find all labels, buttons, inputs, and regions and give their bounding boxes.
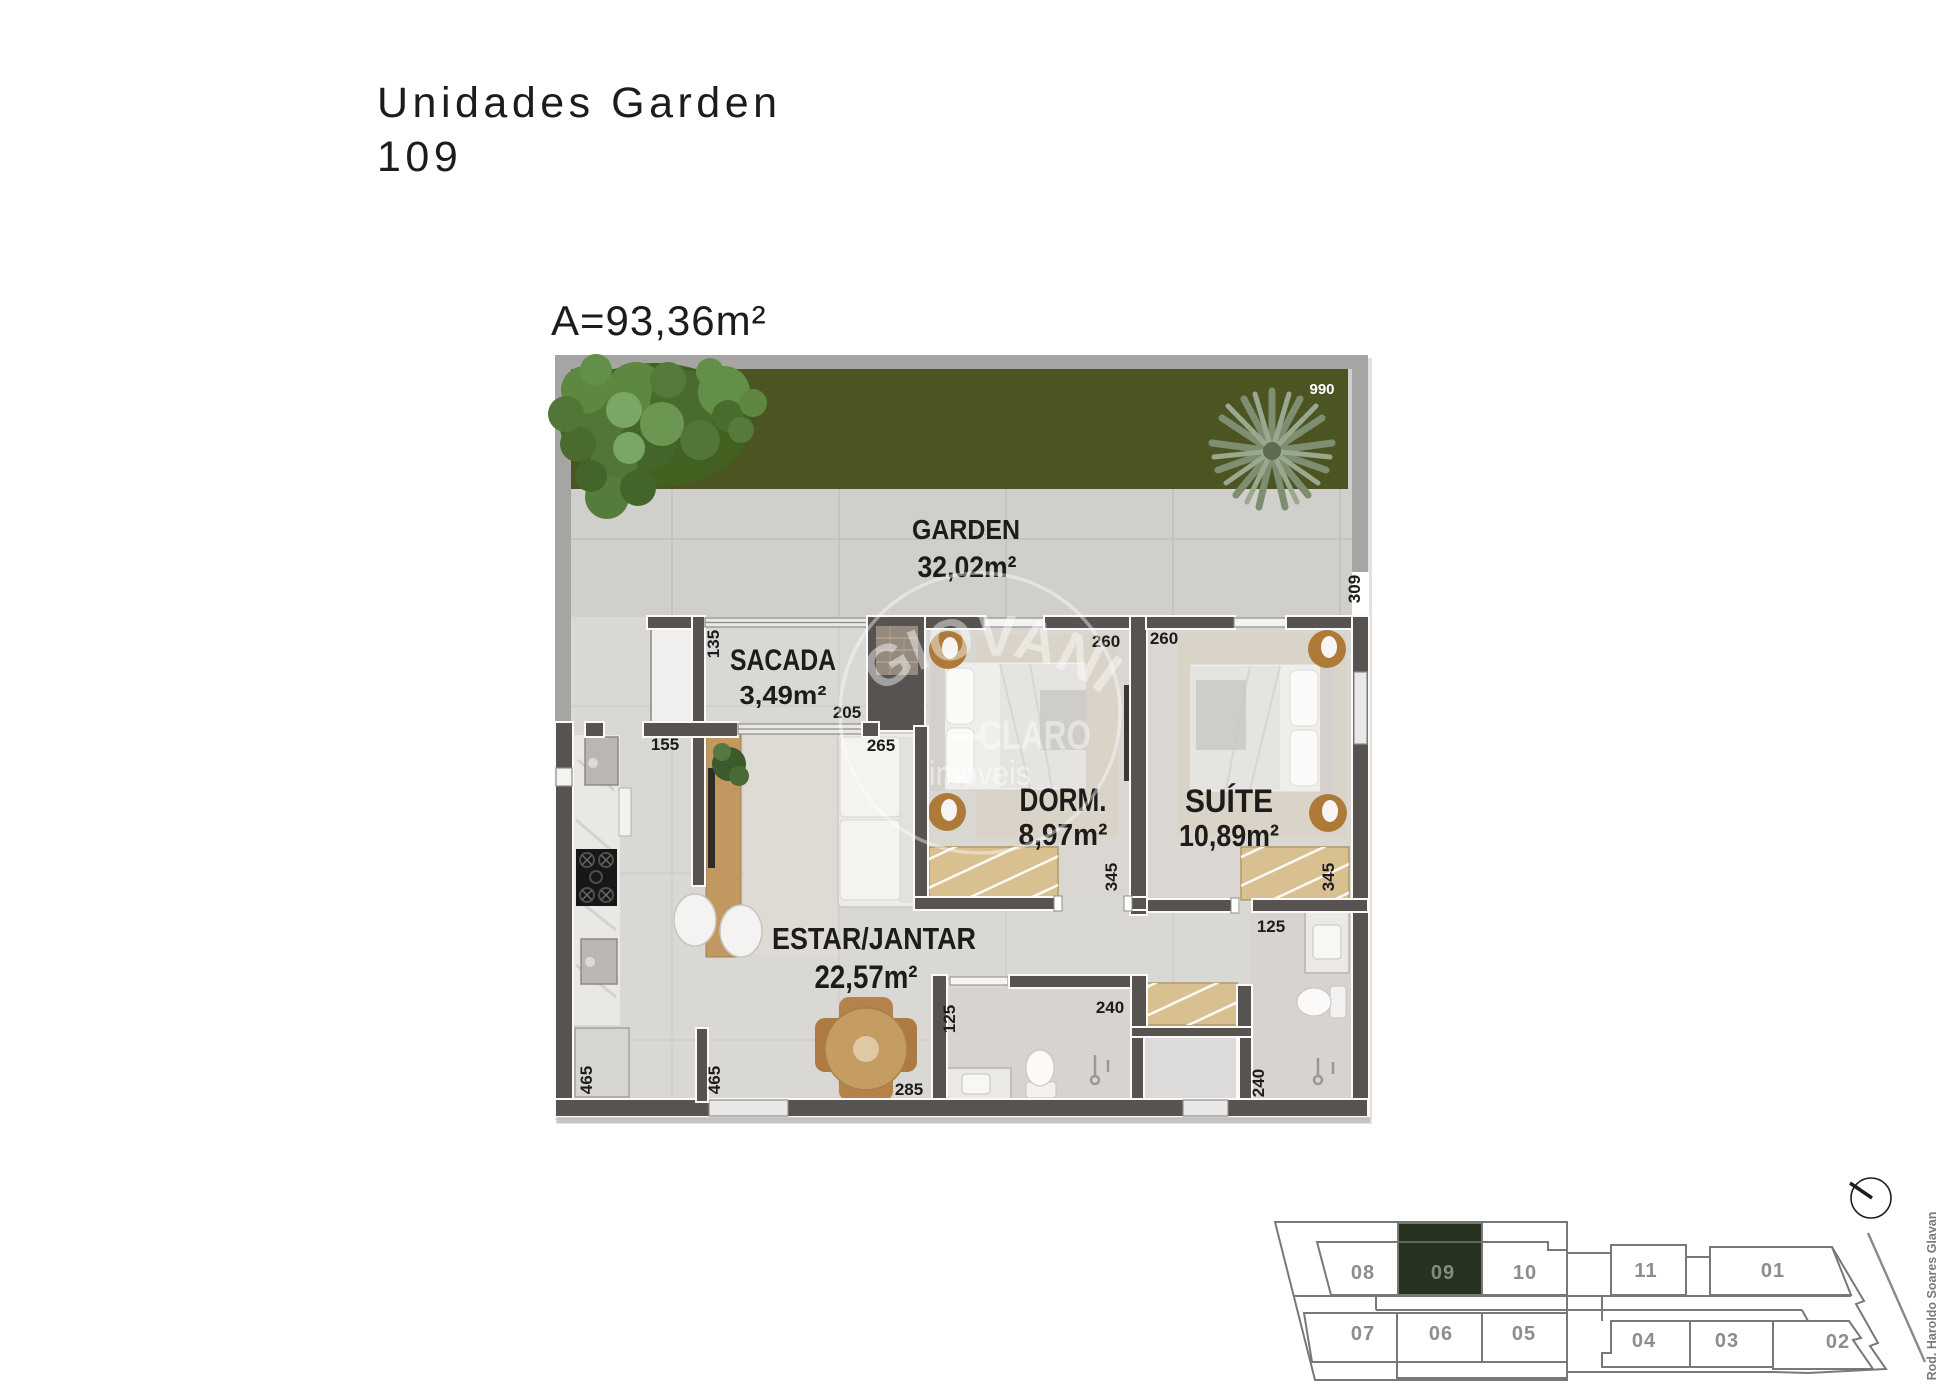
- svg-text:22,57m²: 22,57m²: [815, 959, 918, 995]
- svg-text:125: 125: [1257, 917, 1285, 936]
- svg-text:DORM.: DORM.: [1020, 782, 1107, 818]
- svg-text:465: 465: [705, 1066, 724, 1094]
- svg-text:260: 260: [1150, 629, 1178, 648]
- svg-text:04: 04: [1632, 1330, 1656, 1352]
- svg-text:8,97m²: 8,97m²: [1019, 817, 1108, 852]
- svg-text:285: 285: [895, 1080, 923, 1099]
- svg-text:345: 345: [1319, 863, 1338, 891]
- svg-text:11: 11: [1634, 1260, 1657, 1282]
- svg-text:05: 05: [1512, 1323, 1536, 1345]
- svg-text:GARDEN: GARDEN: [912, 514, 1020, 545]
- svg-text:10,89m²: 10,89m²: [1179, 818, 1279, 853]
- svg-text:3,49m²: 3,49m²: [740, 680, 827, 710]
- svg-text:155: 155: [651, 735, 679, 754]
- svg-text:240: 240: [1249, 1069, 1268, 1097]
- svg-text:990: 990: [1309, 381, 1334, 398]
- svg-text:09: 09: [1431, 1262, 1455, 1284]
- svg-text:32,02m²: 32,02m²: [918, 551, 1017, 584]
- svg-text:07: 07: [1351, 1323, 1375, 1345]
- svg-text:CLARO: CLARO: [979, 712, 1091, 758]
- svg-text:345: 345: [1102, 863, 1121, 891]
- svg-text:10: 10: [1513, 1262, 1537, 1284]
- svg-text:125: 125: [940, 1005, 959, 1033]
- svg-text:465: 465: [577, 1066, 596, 1094]
- svg-text:02: 02: [1826, 1331, 1850, 1353]
- svg-text:imóveis: imóveis: [929, 755, 1031, 793]
- svg-text:309: 309: [1345, 575, 1364, 603]
- svg-text:08: 08: [1351, 1262, 1375, 1284]
- svg-text:Rod. Haroldo Soares Glavan: Rod. Haroldo Soares Glavan: [1925, 1212, 1939, 1381]
- svg-text:03: 03: [1715, 1330, 1739, 1352]
- svg-text:240: 240: [1096, 998, 1124, 1017]
- svg-text:135: 135: [704, 630, 723, 658]
- svg-text:ESTAR/JANTAR: ESTAR/JANTAR: [772, 921, 976, 956]
- svg-text:205: 205: [833, 703, 861, 722]
- svg-text:SUÍTE: SUÍTE: [1185, 783, 1273, 819]
- svg-text:06: 06: [1429, 1323, 1453, 1345]
- svg-text:01: 01: [1761, 1260, 1785, 1282]
- svg-text:265: 265: [867, 736, 895, 755]
- svg-text:SACADA: SACADA: [730, 644, 836, 677]
